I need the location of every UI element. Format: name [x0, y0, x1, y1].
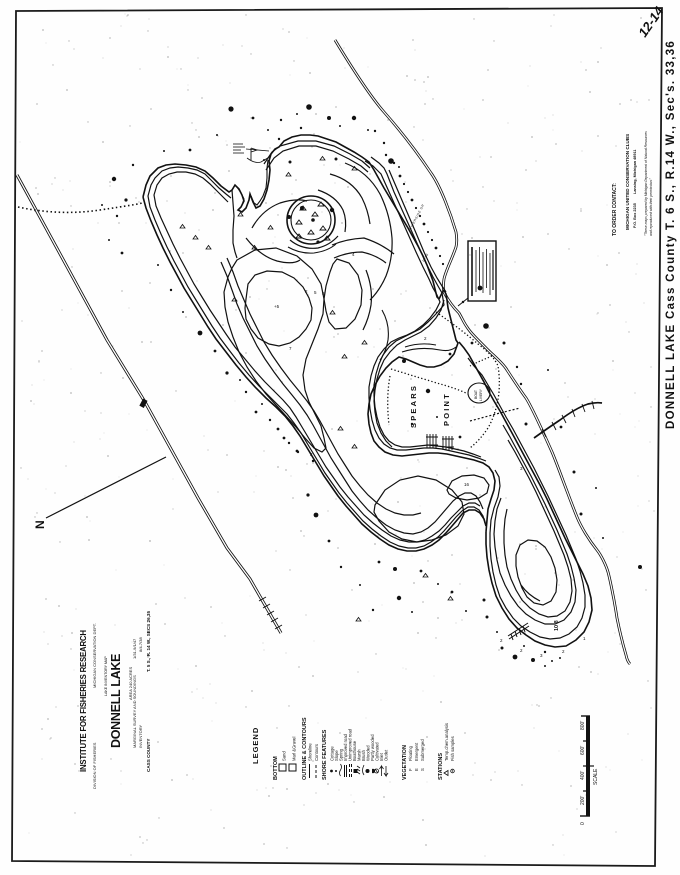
svg-text:Sand: Sand — [282, 751, 287, 761]
svg-text:10 8: 10 8 — [554, 620, 560, 631]
svg-text:16: 16 — [464, 482, 470, 487]
svg-text:T. 5 S., R. 14 W., SECS 26,35: T. 5 S., R. 14 W., SECS 26,35 — [146, 611, 151, 672]
svg-text:1/31-9/1/47: 1/31-9/1/47 — [132, 638, 137, 659]
svg-text:and reproduced with their perm: and reproduced with their permission." — [649, 177, 653, 236]
svg-text:0: 0 — [580, 822, 586, 825]
svg-text:Fish samples: Fish samples — [450, 736, 455, 761]
svg-text:F: F — [408, 768, 413, 771]
svg-text:LAKE INVENTORY MAP: LAKE INVENTORY MAP — [104, 656, 108, 696]
svg-text:+5: +5 — [274, 304, 280, 309]
svg-text:Temp.chem.analysis: Temp.chem.analysis — [444, 723, 449, 761]
svg-text:LIVERY: LIVERY — [479, 388, 483, 401]
svg-text:LEGEND: LEGEND — [251, 727, 260, 764]
svg-text:BOTTOM: BOTTOM — [273, 756, 279, 780]
svg-text:MARGINAL SURVEY AND SOUNDING: MARGINAL SURVEY AND SOUNDINGS — [132, 675, 137, 748]
svg-text:DONNELL LAKE: DONNELL LAKE — [109, 654, 123, 748]
svg-text:400': 400' — [580, 771, 586, 780]
svg-text:DONNELL LAKE Cass County T. 6: DONNELL LAKE Cass County T. 6 S., R.14 W… — [665, 40, 677, 429]
svg-text:800': 800' — [580, 721, 586, 730]
svg-text:600': 600' — [580, 746, 586, 755]
svg-text:Shoreline: Shoreline — [308, 743, 313, 761]
svg-text:SPEARS: SPEARS — [409, 384, 418, 428]
svg-text:Marl &Gravel: Marl &Gravel — [292, 736, 297, 761]
svg-text:P.O. Box 2235: P.O. Box 2235 — [633, 203, 637, 228]
svg-text:N: N — [33, 520, 47, 529]
svg-text:MICHIGAN UNITED CONSERVATION C: MICHIGAN UNITED CONSERVATION CLUBS — [625, 134, 630, 230]
svg-text:DIVISION OF FISHERIES: DIVISION OF FISHERIES — [92, 742, 97, 789]
svg-text:SCALE: SCALE — [593, 768, 599, 785]
svg-text:TO ORDER CONTACT:: TO ORDER CONTACT: — [612, 183, 618, 236]
svg-text:CASS COUNTY: CASS COUNTY — [146, 739, 151, 772]
svg-text:INSTITUTE FOR FISHERIES RESEAR: INSTITUTE FOR FISHERIES RESEARCH — [79, 630, 88, 772]
svg-text:Outlet: Outlet — [384, 749, 389, 761]
svg-text:"These maps prepared by Michig: "These maps prepared by Michigan Departm… — [644, 131, 648, 236]
svg-text:Submerged: Submerged — [420, 739, 425, 761]
svg-text:200': 200' — [580, 796, 586, 805]
svg-text:INVENTORY: INVENTORY — [138, 724, 143, 748]
svg-text:SHORE FEATURES: SHORE FEATURES — [322, 729, 328, 780]
svg-text:Floating: Floating — [408, 745, 413, 761]
svg-text:8/4-7/38: 8/4-7/38 — [138, 637, 143, 652]
svg-text:E: E — [414, 768, 419, 771]
svg-text:Contours: Contours — [314, 744, 319, 761]
svg-text:Lansing, Michigan 48911: Lansing, Michigan 48911 — [633, 149, 637, 194]
svg-text:MICHIGAN CONSERVATION DEPT.: MICHIGAN CONSERVATION DEPT. — [92, 623, 97, 688]
svg-text:S: S — [420, 768, 425, 771]
svg-text:POINT: POINT — [442, 392, 451, 426]
svg-text:Emergent: Emergent — [414, 742, 419, 761]
svg-text:BOAT: BOAT — [474, 390, 478, 399]
